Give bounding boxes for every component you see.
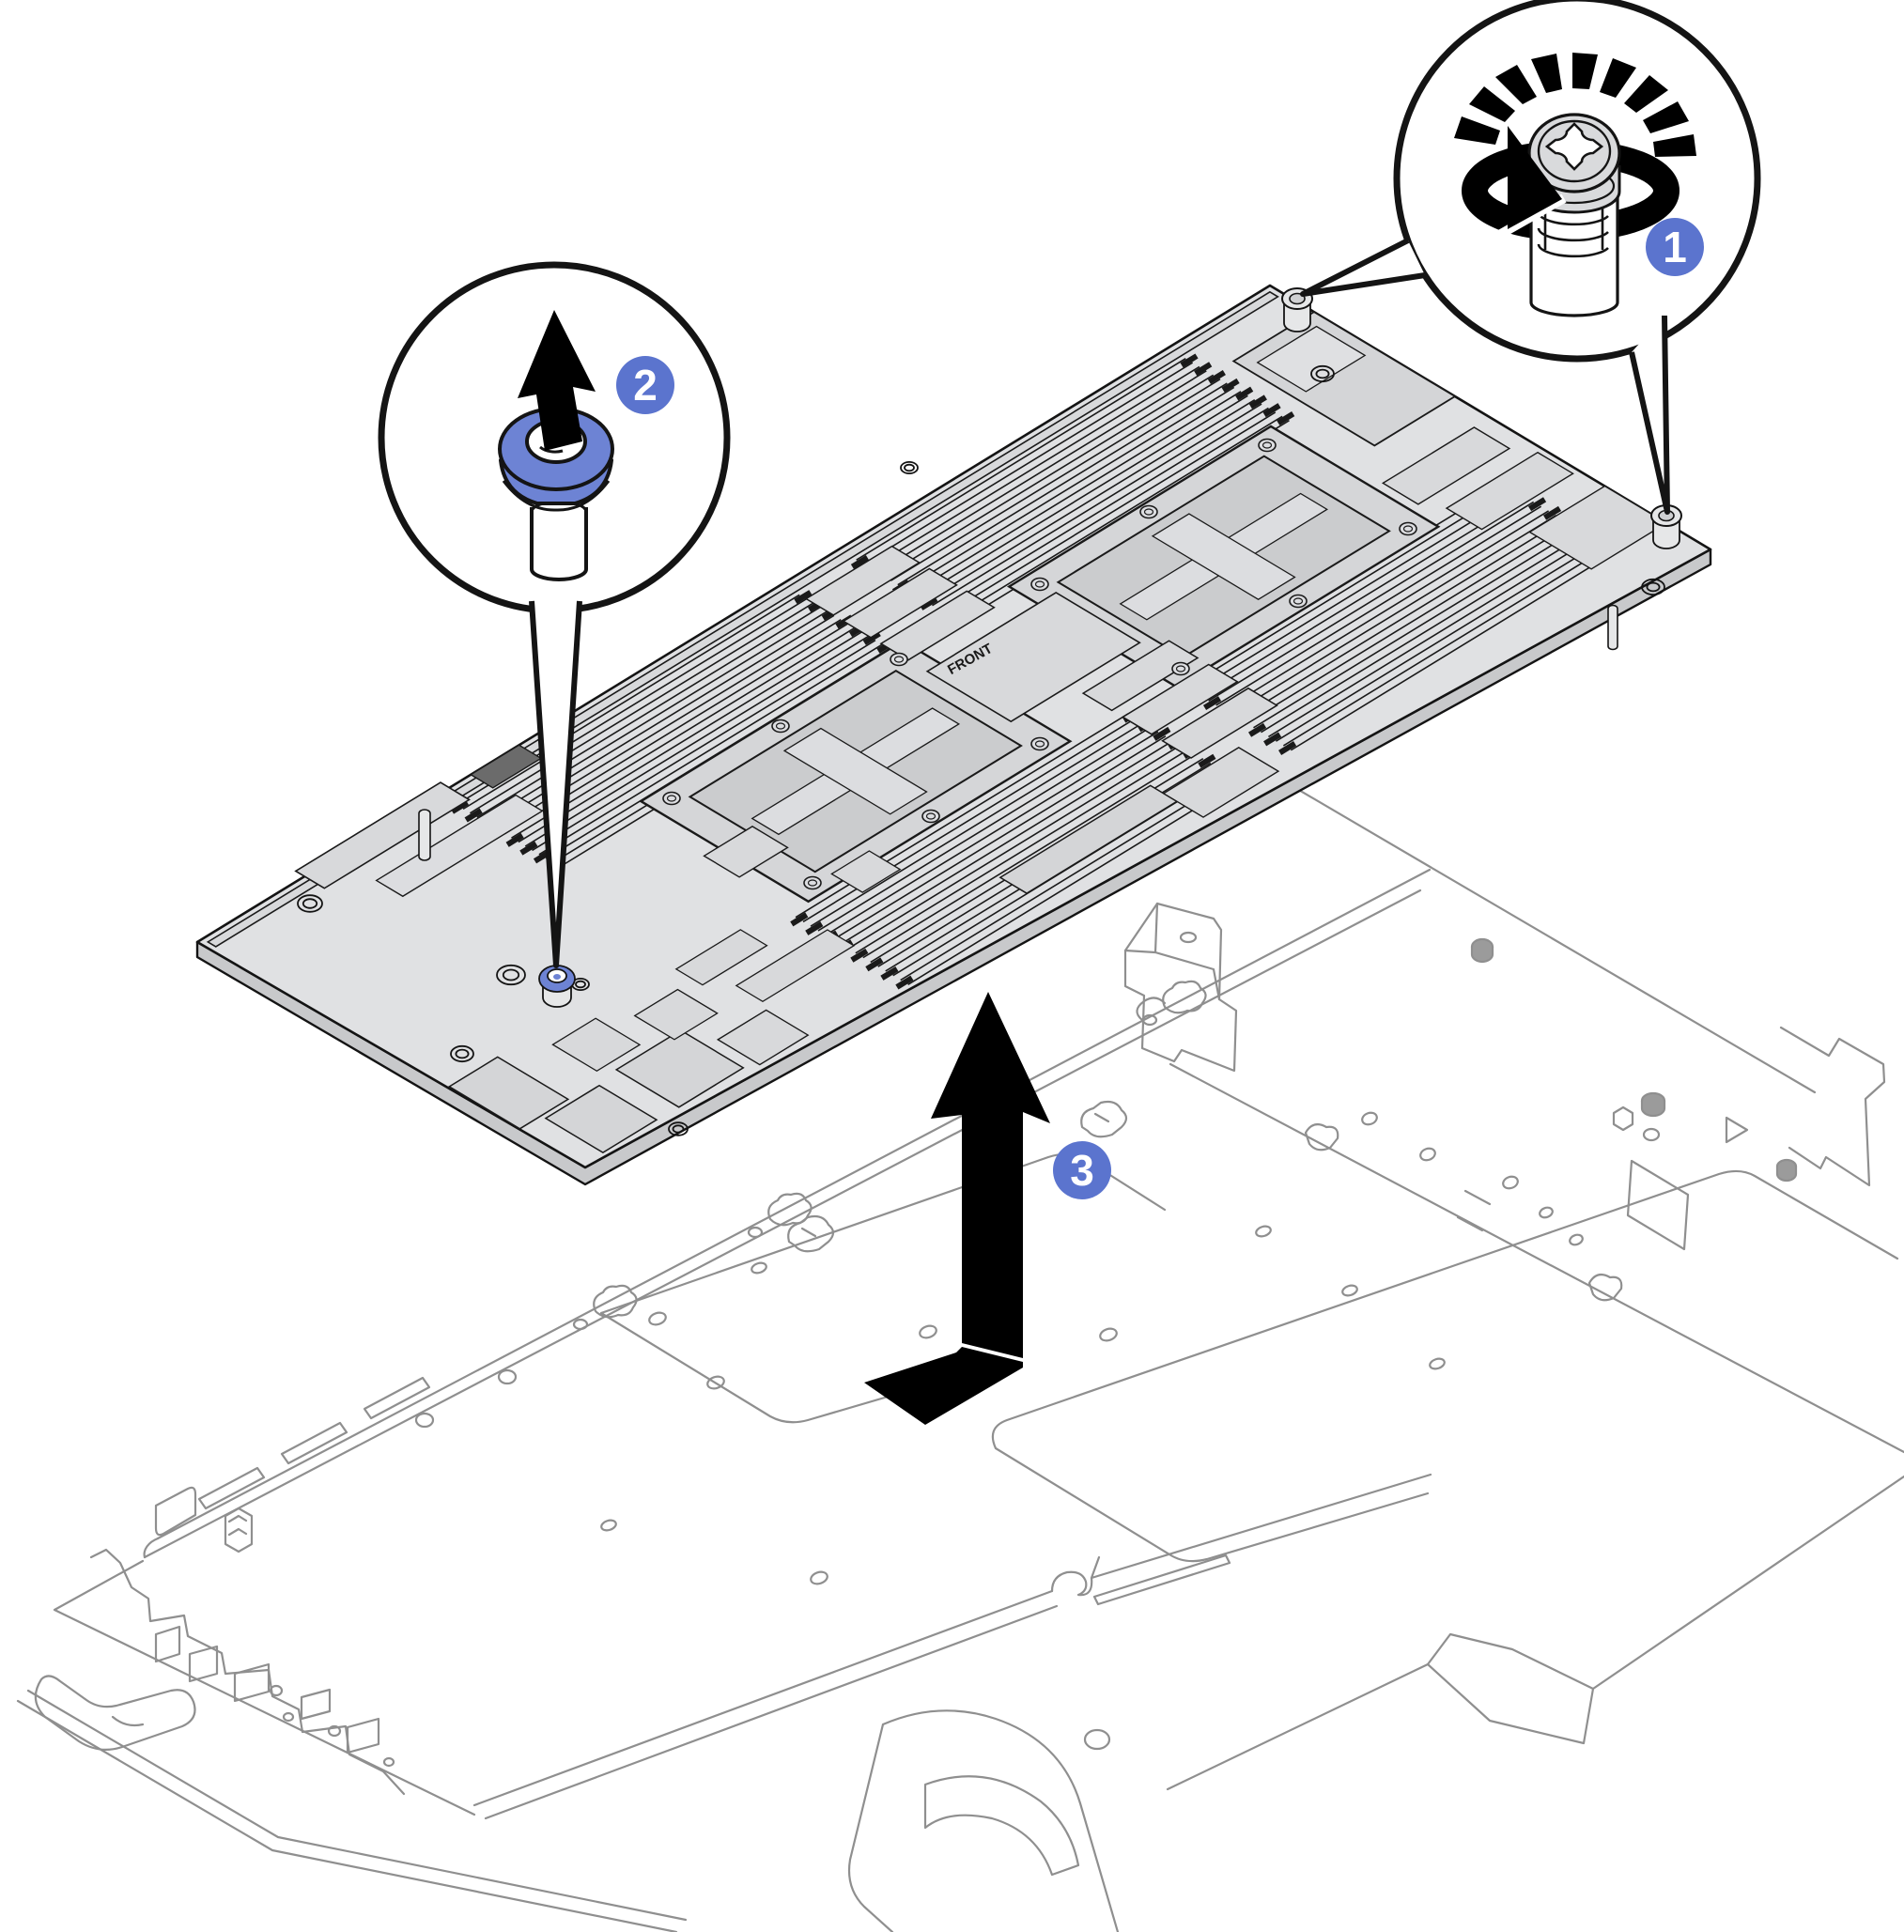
svg-text:3: 3 [1070, 1146, 1094, 1195]
svg-text:2: 2 [633, 361, 658, 410]
svg-text:1: 1 [1663, 223, 1687, 271]
